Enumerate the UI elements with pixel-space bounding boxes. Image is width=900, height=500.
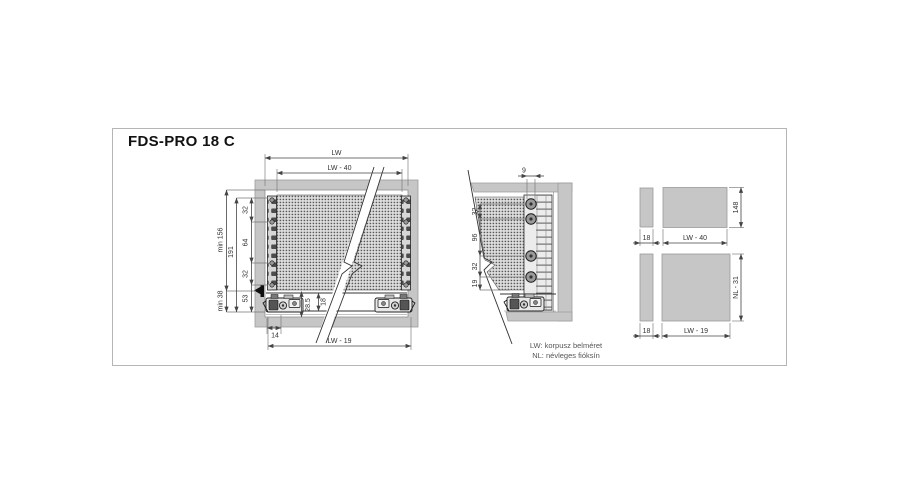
front-lw40-label: LW - 40 bbox=[328, 165, 352, 172]
section-top-side-panel bbox=[640, 188, 653, 227]
front-191-label: 191 bbox=[228, 246, 235, 258]
front-18-label: 18 bbox=[321, 298, 328, 306]
front-view: LW LW - 40 bbox=[218, 150, 419, 350]
section-bottom-width-label: LW - 19 bbox=[684, 328, 708, 335]
section-top-width-label: LW - 40 bbox=[683, 235, 707, 242]
front-53-label: 53 bbox=[243, 295, 250, 303]
right-rail bbox=[402, 196, 411, 290]
front-32bottom-label: 32 bbox=[243, 270, 250, 278]
side-back-panel bbox=[475, 197, 530, 290]
front-285-label: 28.5 bbox=[305, 298, 312, 312]
front-32top-label: 32 bbox=[243, 206, 250, 214]
legend-line-nl: NL: névleges fióksín bbox=[532, 351, 600, 360]
front-64-label: 64 bbox=[243, 239, 250, 247]
front-14-label: 14 bbox=[271, 333, 279, 340]
side-32bottom-label: 32 bbox=[472, 263, 479, 271]
legend-line-lw: LW: korpusz belméret bbox=[530, 341, 603, 350]
side-32top-label: 32 bbox=[472, 208, 479, 216]
technical-drawing: LW LW - 40 bbox=[0, 0, 900, 500]
section-top: 18 LW - 40 148 bbox=[633, 188, 744, 247]
section-top-back-panel bbox=[663, 188, 727, 228]
section-bottom-height-label: NL - 31 bbox=[733, 276, 740, 299]
section-top-18-label: 18 bbox=[643, 235, 651, 242]
front-min156-label: min 156 bbox=[218, 227, 225, 252]
side-9-label: 9 bbox=[522, 168, 526, 175]
legend: LW: korpusz belméret NL: névleges fióksí… bbox=[530, 341, 603, 360]
front-lw19-label: LW - 19 bbox=[328, 338, 352, 345]
side-view: 9 32 96 32 19 bbox=[468, 168, 572, 345]
side-bottom-panel bbox=[506, 312, 572, 321]
side-96-label: 96 bbox=[472, 234, 479, 242]
side-cabinet-wall bbox=[558, 183, 572, 321]
side-top-panel bbox=[471, 183, 572, 192]
section-bottom-back-panel bbox=[662, 254, 730, 321]
front-lw-label: LW bbox=[332, 150, 342, 157]
section-bottom-side-panel bbox=[640, 254, 653, 321]
side-rail-ladder bbox=[536, 196, 552, 310]
left-rail bbox=[268, 196, 277, 290]
section-bottom: 18 LW - 19 NL - 31 bbox=[633, 254, 744, 339]
front-min38-label: min 38 bbox=[218, 290, 225, 311]
catalog-page: FDS-PRO 18 C bbox=[0, 0, 900, 500]
section-top-height-label: 148 bbox=[733, 202, 740, 214]
section-bottom-18-label: 18 bbox=[643, 328, 651, 335]
side-19-label: 19 bbox=[472, 280, 479, 288]
